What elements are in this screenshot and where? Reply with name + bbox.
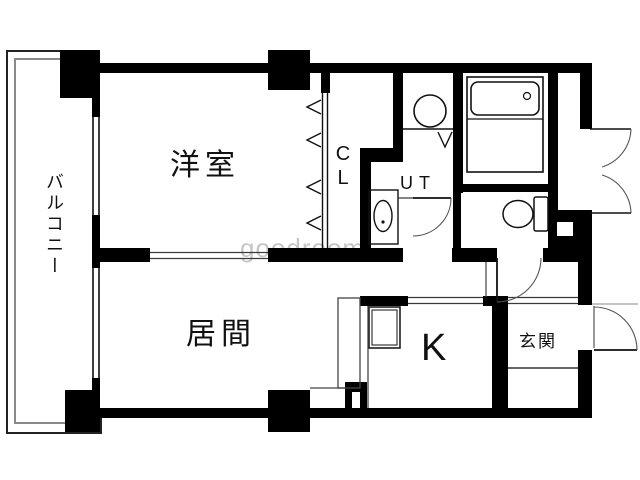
- washing-machine-icon: [414, 95, 446, 127]
- closet-partition: [323, 93, 328, 248]
- wall-segment: [100, 408, 592, 418]
- room-label-entrance: 玄関: [519, 327, 557, 352]
- toilet-icon: [503, 197, 548, 231]
- wall-segment: [60, 50, 100, 98]
- pipe-space-slot: [352, 392, 360, 408]
- bathtub-icon: [467, 77, 543, 172]
- washbasin-icon: [369, 190, 398, 244]
- floorplan-canvas: goodroom: [0, 0, 640, 480]
- room-label-closet: CL: [331, 143, 354, 191]
- wall-segment: [321, 63, 330, 93]
- wall-segment: [92, 248, 150, 262]
- wall-segment: [452, 248, 497, 262]
- room-label-balcony: バルコニー: [41, 172, 67, 277]
- wall-segment: [578, 350, 592, 418]
- wall-segment: [92, 93, 100, 117]
- wall-segment: [543, 248, 592, 262]
- double-door-icon: [590, 129, 631, 213]
- wall-segment: [453, 63, 463, 193]
- floorplan-drawing: [0, 0, 640, 480]
- wall-segment: [268, 50, 310, 90]
- room-label-utility: UT: [400, 173, 436, 194]
- room-label-western-room: 洋室: [170, 140, 240, 184]
- wall-segment: [360, 296, 408, 306]
- wall-segment: [492, 296, 508, 418]
- walls: [60, 50, 592, 432]
- wall-segment: [453, 184, 553, 192]
- room-label-kitchen: K: [421, 327, 446, 370]
- accordion-door-icon: [307, 100, 321, 230]
- wall-segment: [268, 390, 310, 432]
- entrance-door-arc: [592, 304, 638, 350]
- wall-segment: [100, 63, 580, 73]
- meter-box: [557, 222, 573, 236]
- wall-segment: [580, 63, 592, 129]
- fold-door-mark: [438, 132, 452, 147]
- utility-door-arc: [398, 198, 451, 236]
- wall-segment: [65, 390, 100, 432]
- kitchen-sink-icon: [369, 307, 400, 348]
- room-label-living-room: 居間: [186, 309, 256, 353]
- toilet-door-arc: [497, 258, 541, 302]
- wall-segment: [92, 378, 100, 392]
- wall-segment: [393, 63, 403, 160]
- wall-segment: [268, 248, 403, 262]
- wall-segment: [453, 184, 461, 248]
